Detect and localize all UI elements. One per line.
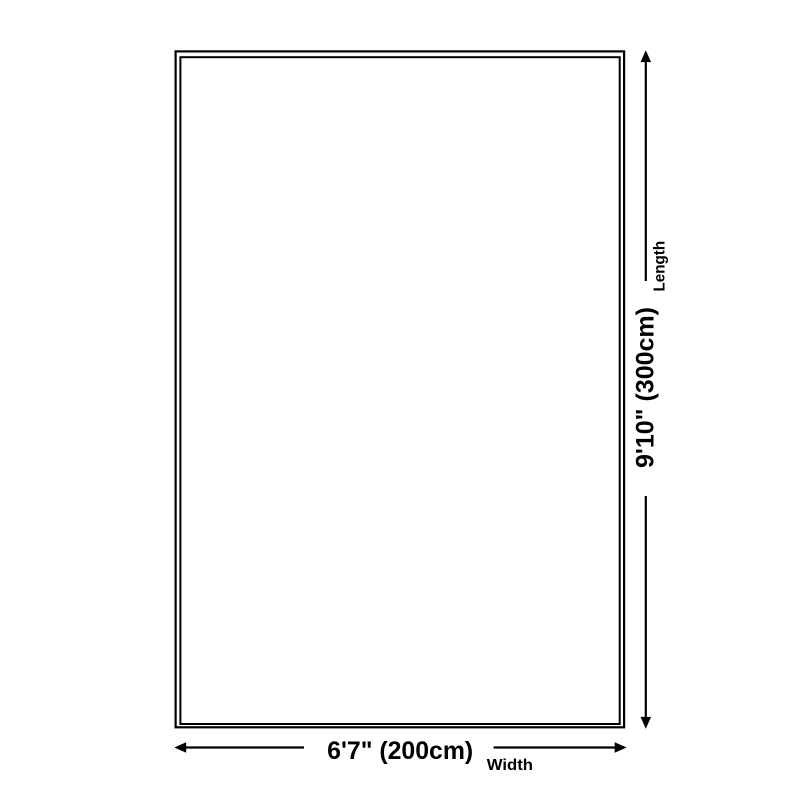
svg-text:Width: Width	[487, 757, 533, 774]
svg-text:6'7" (200cm): 6'7" (200cm)	[327, 738, 473, 765]
svg-text:9'10" (300cm): 9'10" (300cm)	[633, 307, 660, 468]
svg-text:Length: Length	[651, 241, 668, 292]
